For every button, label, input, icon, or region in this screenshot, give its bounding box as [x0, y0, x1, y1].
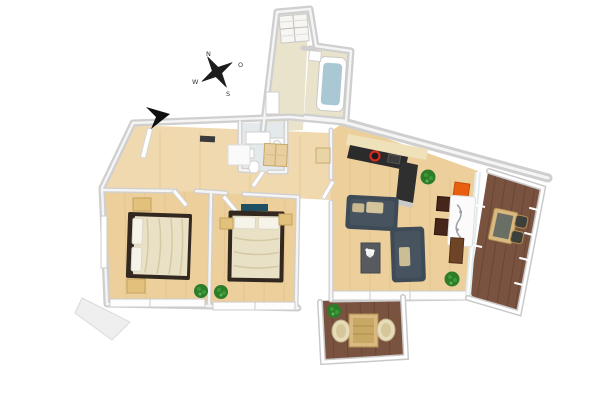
- bed1-nightstand-top: [133, 198, 151, 211]
- hall-cabinet: [228, 145, 250, 165]
- sideboard: [449, 238, 464, 264]
- sofa-horizontal: [345, 195, 399, 232]
- bath-vanity: [309, 50, 322, 61]
- bedroom1-bed: [126, 212, 192, 280]
- compass-w: W: [192, 78, 199, 86]
- coffee-table-top: [361, 243, 380, 273]
- balcony-chair-1: [514, 215, 528, 229]
- terrace-table-inner: [353, 318, 374, 343]
- balcony-chair-2: [510, 230, 524, 244]
- hall-side-cabinet: [316, 148, 330, 163]
- dark-chair-2: [434, 218, 449, 235]
- living-window-band: [333, 291, 466, 300]
- plant-bedroom1: [194, 284, 208, 298]
- compass-rose: N O S W: [192, 47, 243, 98]
- bed2-wall-art: [241, 204, 268, 211]
- bedroom2-window-band: [213, 302, 295, 310]
- bed2-pillow-left: [234, 217, 255, 229]
- bed1-pillow: [132, 218, 143, 244]
- coffee-table: [361, 243, 380, 273]
- compass-n: N: [206, 50, 211, 58]
- plant-kitchen: [421, 170, 436, 185]
- bedroom2-bed: [227, 211, 284, 283]
- bed1-nightstand-bottom: [127, 279, 145, 293]
- plant-terrace: [327, 304, 341, 318]
- sofa1-cushion: [366, 202, 384, 214]
- skylight: [279, 14, 309, 43]
- bedroom1-window-band: [110, 299, 205, 307]
- compass-e: O: [238, 61, 243, 69]
- sofa2-cushion: [399, 247, 411, 266]
- bedroom1-window: [101, 216, 107, 268]
- wc-vanity: [246, 132, 270, 144]
- bathtub: [316, 56, 347, 112]
- plant-living: [445, 272, 460, 287]
- bath-sink: [266, 92, 279, 114]
- bed2-nightstand-left: [220, 218, 233, 229]
- wall-shelf: [200, 136, 215, 143]
- sofa1-cushion2: [352, 203, 364, 213]
- compass-s: S: [226, 90, 230, 98]
- plant-bedroom2: [214, 285, 228, 299]
- floor-plan-screenshot: N O S W: [0, 0, 600, 400]
- sofa-vertical: [390, 226, 426, 282]
- bed1-pillow2: [131, 247, 142, 271]
- floor-plan-render: N O S W: [0, 0, 600, 400]
- kitchen-sink: [387, 154, 400, 164]
- compass-star: [192, 47, 242, 97]
- bed2-pillow-right: [258, 217, 279, 229]
- bed2-nightstand-right: [279, 214, 292, 225]
- cooktop: [371, 152, 380, 161]
- hall-dresser: [263, 143, 287, 166]
